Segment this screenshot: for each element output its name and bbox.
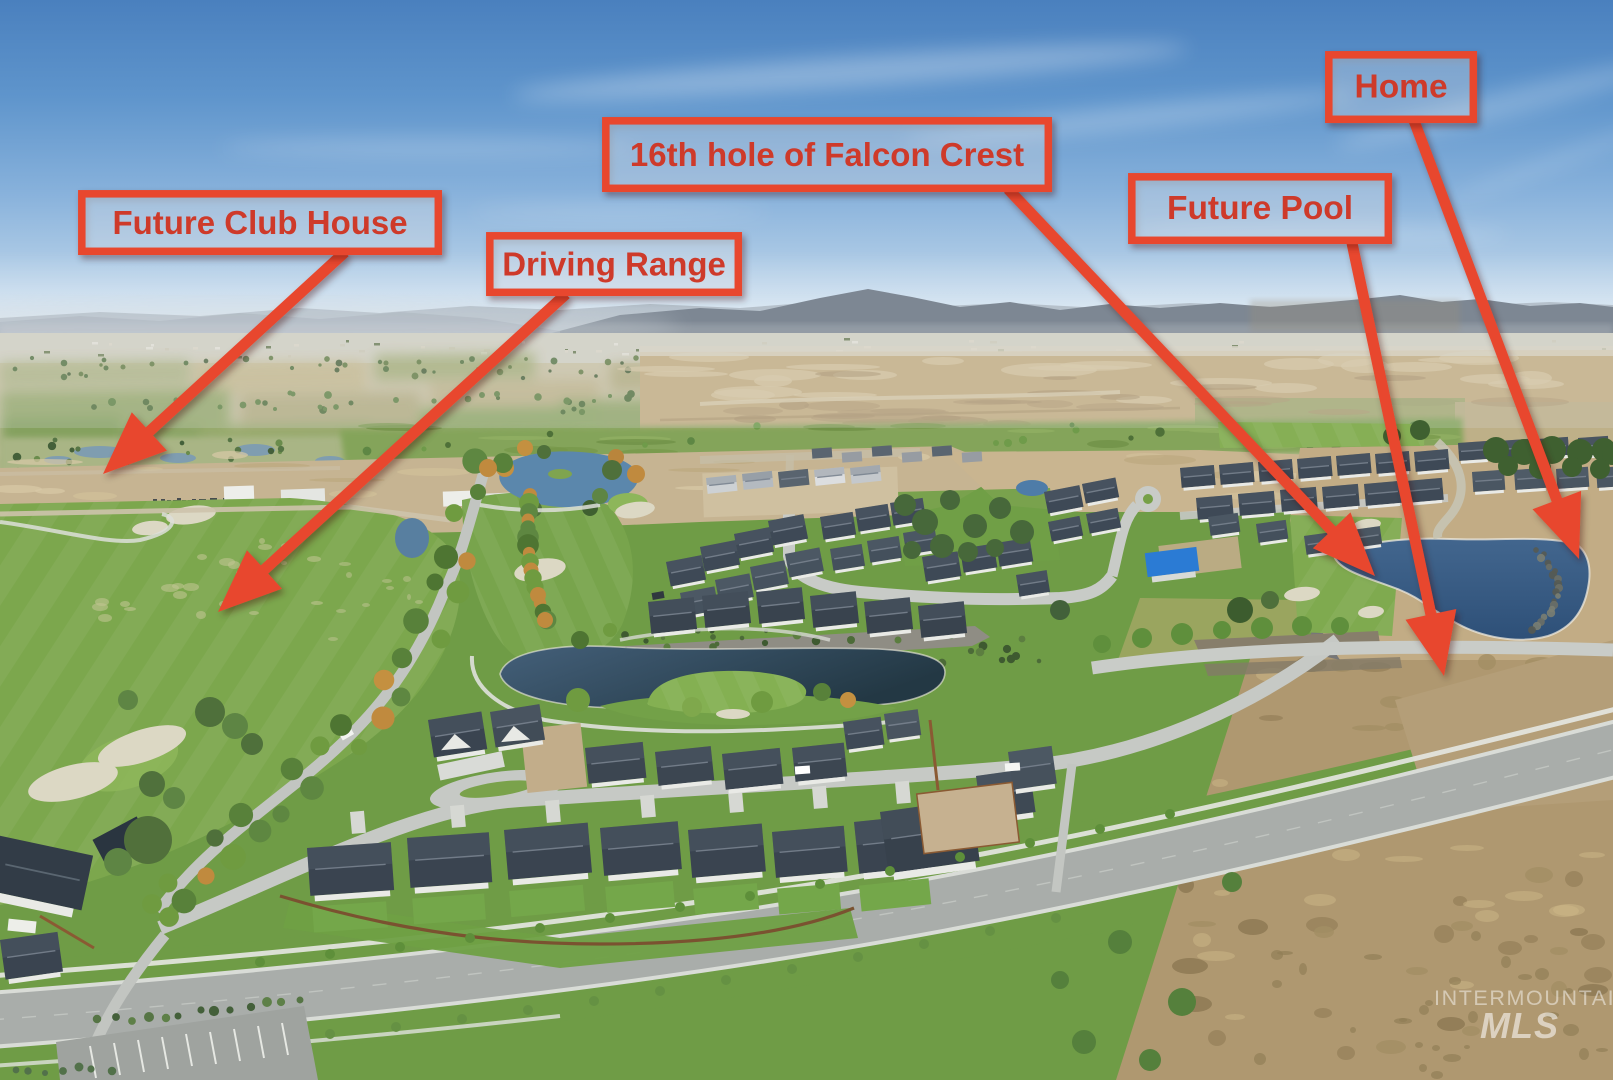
- svg-text:Home: Home: [1355, 69, 1448, 106]
- svg-text:MLS: MLS: [1480, 1005, 1559, 1046]
- svg-text:16th hole of Falcon Crest: 16th hole of Falcon Crest: [630, 136, 1024, 173]
- svg-text:Future Club House: Future Club House: [112, 204, 407, 241]
- svg-text:Driving Range: Driving Range: [502, 246, 726, 283]
- svg-text:Future Pool: Future Pool: [1167, 190, 1353, 227]
